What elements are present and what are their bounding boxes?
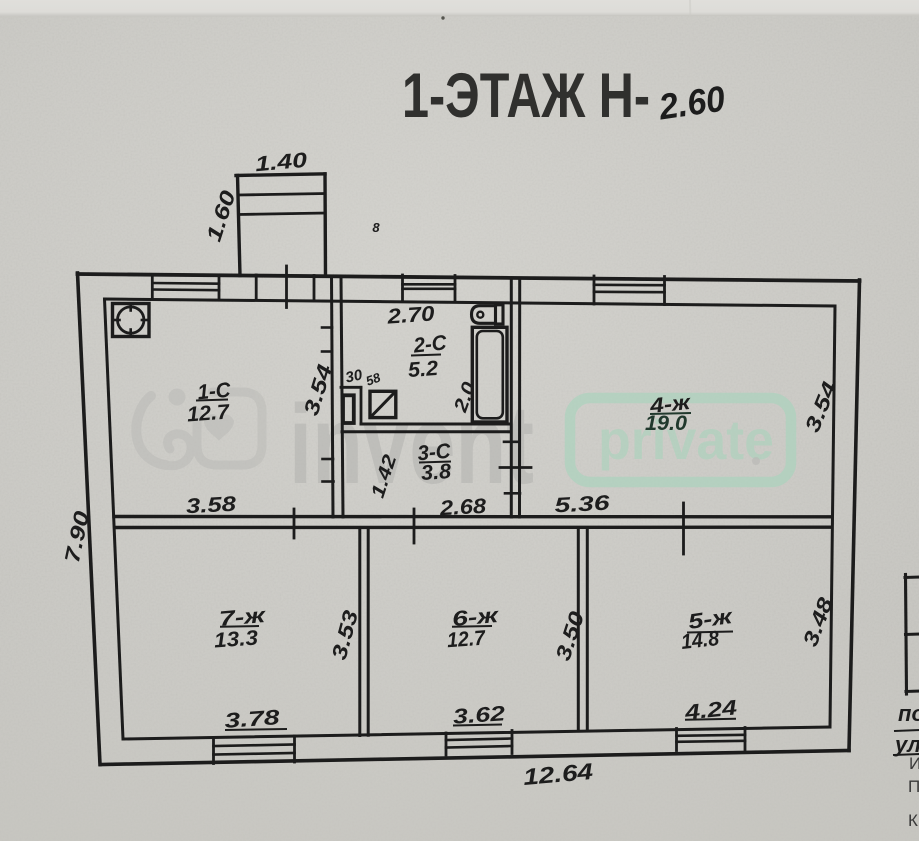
svg-text:К: К xyxy=(908,811,918,830)
svg-text:13.3: 13.3 xyxy=(213,626,259,652)
svg-text:1.40: 1.40 xyxy=(254,149,308,176)
svg-text:2.68: 2.68 xyxy=(438,495,487,520)
svg-text:5.2: 5.2 xyxy=(407,357,439,382)
svg-text:2.70: 2.70 xyxy=(386,302,436,328)
svg-text:1-ЭТАЖ Н-: 1-ЭТАЖ Н- xyxy=(402,61,650,131)
svg-text:3.58: 3.58 xyxy=(185,493,237,519)
svg-text:12.7: 12.7 xyxy=(446,627,487,653)
svg-text:3.8: 3.8 xyxy=(420,460,452,485)
svg-text:8: 8 xyxy=(372,220,380,235)
svg-text:И: И xyxy=(909,754,919,773)
svg-text:12.7: 12.7 xyxy=(186,400,231,426)
svg-text:П: П xyxy=(908,777,919,796)
svg-text:2-С: 2-С xyxy=(411,331,448,358)
svg-text:5.36: 5.36 xyxy=(554,492,611,518)
svg-text:по: по xyxy=(898,701,919,726)
